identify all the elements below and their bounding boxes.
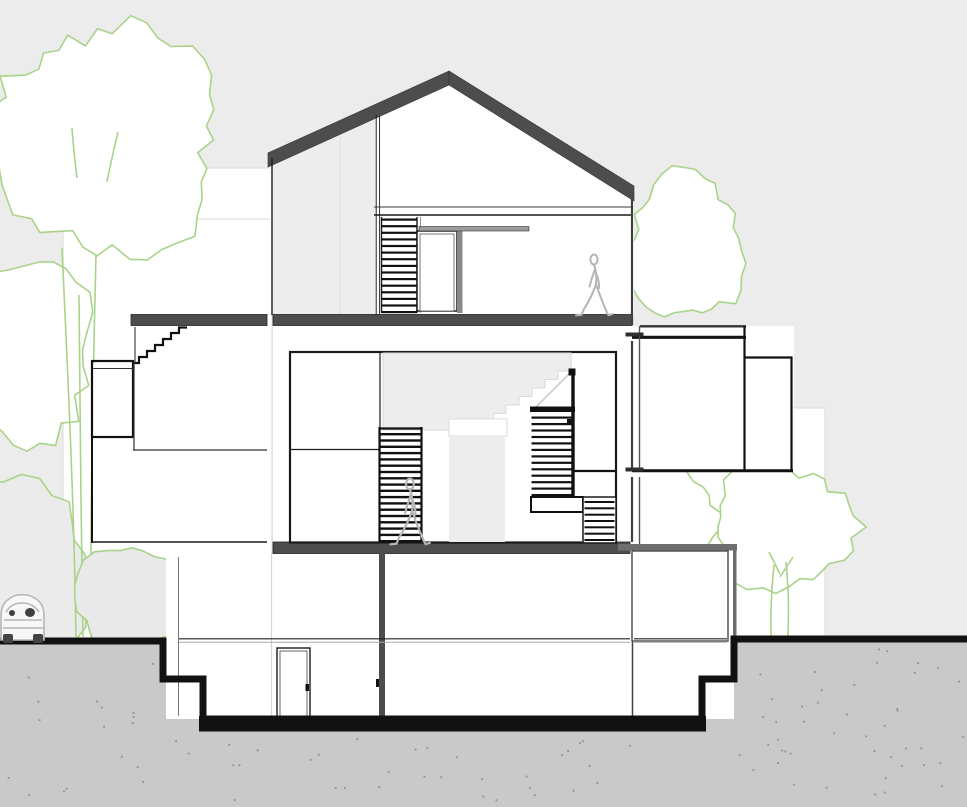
foundation-slab <box>199 716 706 732</box>
basement-partition-wall <box>379 553 385 716</box>
stair-landing-box <box>531 497 583 512</box>
car <box>1 595 44 643</box>
right-wing-fill <box>632 326 794 471</box>
datum-mark-lower <box>626 468 644 472</box>
main-floor-slab <box>273 542 630 554</box>
basement-door <box>277 648 310 721</box>
annex <box>618 544 737 642</box>
datum-mark-upper <box>626 333 644 337</box>
car-wheel-right <box>33 634 43 643</box>
architectural-section-canvas <box>0 0 967 807</box>
attic-door-jamb <box>457 229 463 313</box>
annex-roof-band <box>618 544 737 551</box>
attic-beam <box>419 227 529 232</box>
left-wing-roof-slab <box>131 315 267 326</box>
stairwell-grey-band <box>449 436 505 542</box>
annex-right-wall <box>733 544 737 641</box>
attic-door <box>417 229 463 313</box>
ghost-landing <box>449 419 507 436</box>
basement-door-handle <box>306 684 310 691</box>
car-body <box>1 595 44 640</box>
car-wheel-left <box>3 634 13 643</box>
car-driver-icon <box>25 608 35 617</box>
partition-door-handle <box>376 679 379 687</box>
annex-room <box>632 551 728 641</box>
car-mirror-icon <box>9 610 15 616</box>
